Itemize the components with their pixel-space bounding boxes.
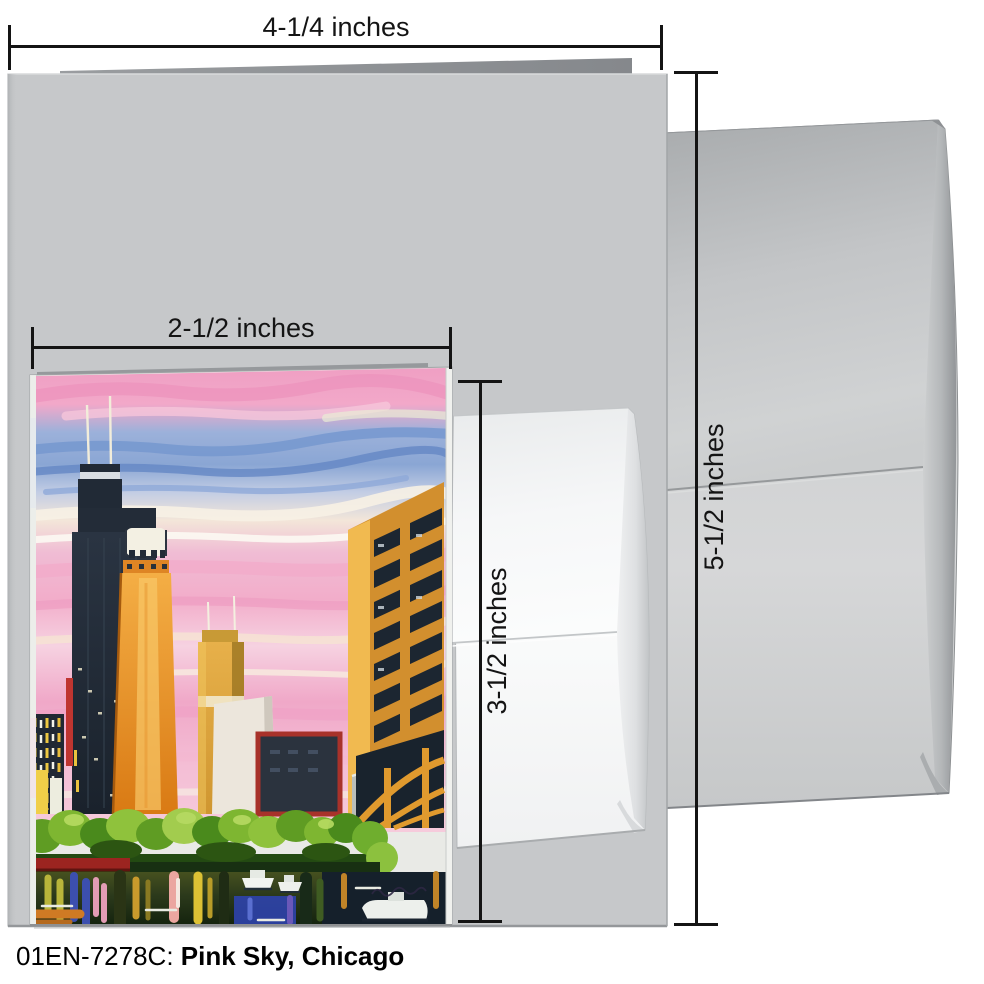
card-back-fold (60, 58, 632, 74)
measure-card-width-line (8, 45, 663, 48)
product-code: 01EN-7278C: (16, 941, 174, 971)
product-caption: 01EN-7278C: Pink Sky, Chicago (16, 941, 404, 972)
product-title: Pink Sky, Chicago (181, 941, 404, 971)
measure-card-height-line (695, 73, 698, 925)
painting-red-building (258, 734, 340, 814)
mini-card-painting (26, 358, 458, 930)
measure-card-height-label: 5-1/2 inches (700, 397, 728, 597)
greeting-card-size-diagram: 4-1/4 inches 2-1/2 inches 3-1/2 inches 5… (0, 0, 984, 984)
measure-insert-width-label: 2-1/2 inches (141, 314, 341, 342)
measure-card-width-label: 4-1/4 inches (236, 13, 436, 41)
measure-insert-height-label: 3-1/2 inches (483, 541, 511, 741)
small-envelope-flap (451, 408, 628, 643)
painting-marina-city (348, 482, 444, 828)
measure-insert-width-line (31, 346, 452, 349)
